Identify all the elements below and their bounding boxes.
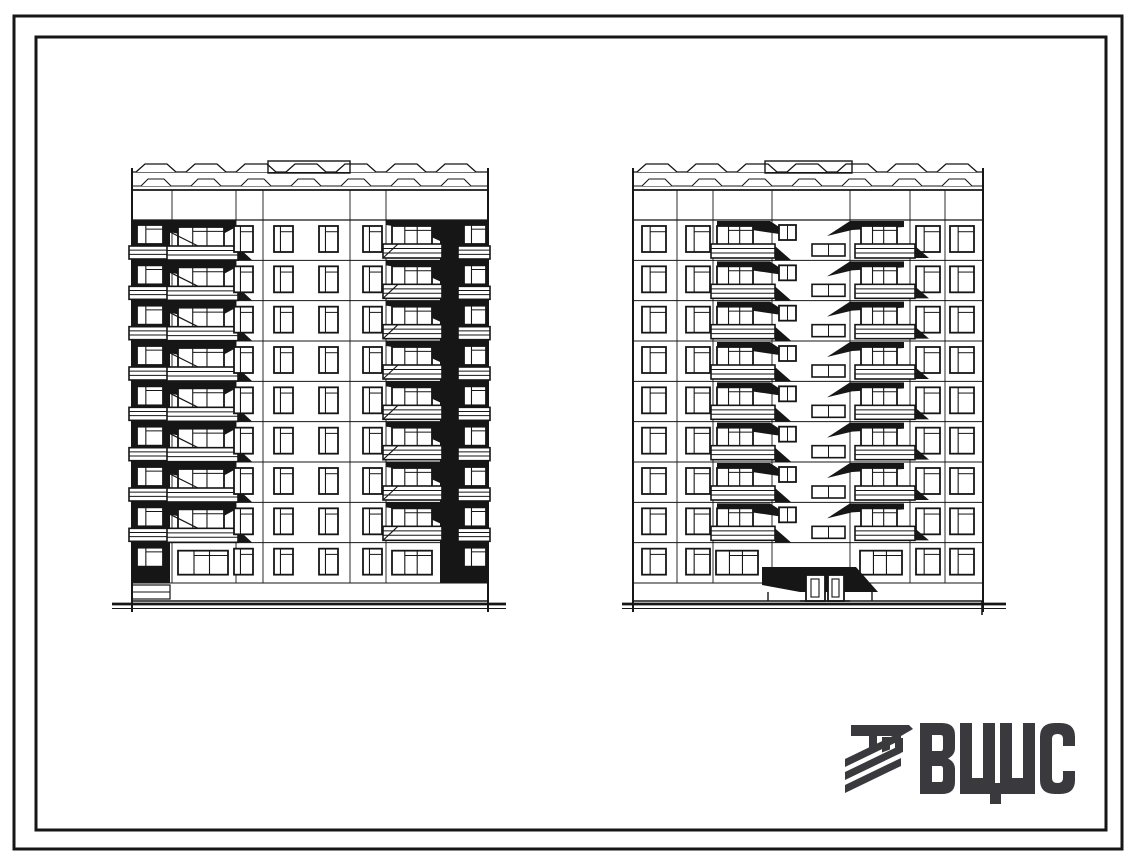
parapet-vent [937,164,977,172]
window [363,307,382,333]
parapet-vent [637,164,677,172]
window [234,468,253,494]
window [274,347,293,373]
window [363,347,382,373]
window [464,346,486,365]
window [363,549,382,575]
parapet-vent-inner [692,179,722,186]
parapet-vent-inner [141,179,171,186]
window [137,548,163,567]
parapet-vent-inner [241,179,271,186]
window [686,549,710,575]
window [950,387,974,413]
window [274,468,293,494]
balcony-parapet [458,286,490,299]
balcony-parapet [167,286,238,300]
balcony-parapet [167,488,238,502]
balcony-under-shadow [775,327,791,341]
balcony-parapet [855,446,915,460]
logo-text [920,723,1075,804]
window [950,266,974,292]
window [319,387,338,413]
window [363,387,382,413]
balcony-parapet [855,284,915,298]
window [686,508,710,534]
window [363,508,382,534]
window [234,266,253,292]
parapet-vent [286,164,326,172]
window [319,508,338,534]
window [274,428,293,454]
balcony-parapet [855,486,915,500]
logo-letter [920,723,955,794]
balcony-window [392,551,432,575]
window [319,307,338,333]
window [319,266,338,292]
balcony-parapet [129,286,170,299]
balcony-parapet [383,486,442,500]
window [686,428,710,454]
window [642,549,666,575]
window [686,387,710,413]
parapet-vent-inner [191,179,221,186]
balcony-parapet [458,246,490,259]
logo-letter [1000,723,1035,794]
window [686,307,710,333]
parapet-vent-inner [792,179,822,186]
balcony-parapet [167,327,238,341]
balcony-under-shadow [775,407,791,421]
window [319,428,338,454]
balcony-under-shadow [775,286,791,300]
window [363,468,382,494]
window [642,266,666,292]
window [137,467,163,486]
window [916,468,940,494]
parapet-vent-inner [742,179,772,186]
window [274,307,293,333]
window [274,226,293,252]
window [916,387,940,413]
parapet-vent [386,164,426,172]
parapet-vent [737,164,777,172]
balcony-under-shadow [775,448,791,462]
window [642,428,666,454]
parapet-vent [887,164,927,172]
parapet-vent [436,164,476,172]
window [137,427,163,446]
balcony-parapet [458,327,490,340]
window [950,428,974,454]
window [686,266,710,292]
window [916,226,940,252]
facade-left-elevation [112,161,506,612]
window [464,507,486,526]
parapet-vent-inner [642,179,672,186]
window [686,226,710,252]
parapet-vent-inner [341,179,371,186]
balcony-parapet [129,367,170,380]
window [234,307,253,333]
window [137,265,163,284]
balcony-parapet [167,246,238,260]
balcony-parapet [167,528,238,542]
window [464,306,486,325]
parapet-vent [186,164,226,172]
window [137,306,163,325]
balcony-parapet [167,367,238,381]
balcony-parapet [458,407,490,420]
balcony-parapet [129,448,170,461]
parapet-vent [336,164,376,172]
parapet-vent-inner [892,179,922,186]
window [642,307,666,333]
balcony-parapet [711,365,775,379]
window [137,225,163,244]
drawing-canvas [0,0,1134,863]
balcony-window [716,551,758,575]
window [274,508,293,534]
window [464,467,486,486]
balcony-parapet [458,367,490,380]
balcony-parapet [711,244,775,258]
logo-bar [895,738,903,755]
balcony-parapet [711,325,775,339]
balcony-parapet [383,365,442,379]
balcony-parapet [383,526,442,540]
window [363,266,382,292]
window [274,549,293,575]
balcony-under-shadow [775,246,791,260]
window [274,387,293,413]
parapet-vent [687,164,727,172]
balcony-parapet [711,526,775,540]
balcony-parapet [129,488,170,501]
window [642,508,666,534]
parapet-vent [136,164,176,172]
window [464,225,486,244]
balcony-parapet [129,327,170,340]
balcony-parapet [855,244,915,258]
window [916,508,940,534]
window [642,387,666,413]
balcony-parapet [855,405,915,419]
balcony-parapet [711,446,775,460]
facade-right-elevation [622,161,1006,615]
window [916,307,940,333]
parapet-vent-inner [842,179,872,186]
balcony-parapet [129,407,170,420]
balcony-parapet [383,446,442,460]
balcony-window [860,551,902,575]
window [950,508,974,534]
window [916,549,940,575]
window [642,347,666,373]
balcony-parapet [711,405,775,419]
logo-letter [1040,723,1075,794]
balcony-under-shadow [775,488,791,502]
window [363,226,382,252]
window [916,428,940,454]
window [137,386,163,405]
balcony-parapet [383,284,442,298]
window [234,508,253,534]
window [464,548,486,567]
window [319,549,338,575]
balcony-parapet [458,448,490,461]
balcony-parapet [855,325,915,339]
window [950,226,974,252]
window [916,347,940,373]
window [642,226,666,252]
window [234,387,253,413]
window [319,347,338,373]
balcony-parapet [458,488,490,501]
balcony-parapet [458,528,490,541]
logo-cap [851,725,913,736]
balcony-parapet [383,244,442,258]
logo-letter [960,723,1001,804]
window [137,507,163,526]
window [274,266,293,292]
institute-logo [845,723,1075,804]
window [319,468,338,494]
window [234,347,253,373]
window [686,347,710,373]
window [642,468,666,494]
balcony-parapet [129,246,170,259]
window [363,428,382,454]
balcony-window [178,551,228,575]
balcony-parapet [855,365,915,379]
parapet-vent [787,164,827,172]
window [916,266,940,292]
balcony-parapet [711,486,775,500]
window [234,549,253,575]
window [464,386,486,405]
window [950,347,974,373]
balcony-under-shadow [775,528,791,542]
balcony-parapet [383,325,442,339]
hatched-monogram-icon [845,725,913,793]
parapet-vent [236,164,276,172]
logo-bar [882,737,890,753]
window [950,468,974,494]
parapet-vent-inner [291,179,321,186]
balcony-parapet [383,405,442,419]
window [234,226,253,252]
window [319,226,338,252]
balcony-parapet [129,528,170,541]
window [950,307,974,333]
balcony-parapet [167,448,238,462]
window [234,428,253,454]
balcony-parapet [711,284,775,298]
window [464,427,486,446]
window [686,468,710,494]
window [464,265,486,284]
parapet-vent-inner [441,179,471,186]
window [950,549,974,575]
balcony-parapet [855,526,915,540]
balcony-parapet [167,407,238,421]
parapet-vent-inner [391,179,421,186]
drawing-sheet [0,0,1134,863]
balcony-under-shadow [775,367,791,381]
parapet-vent-inner [942,179,972,186]
parapet-vent [837,164,877,172]
window [137,346,163,365]
